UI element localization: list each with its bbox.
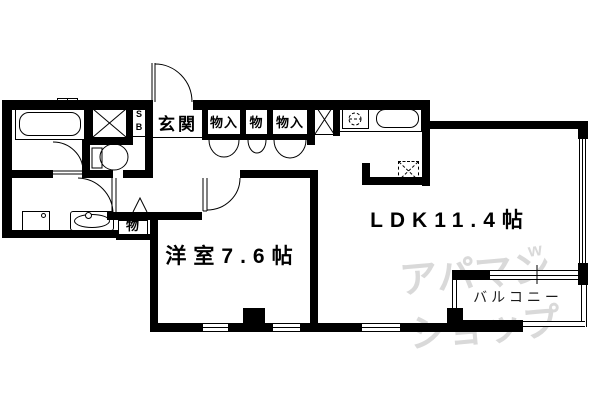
pipe-space-x-west: [93, 109, 126, 137]
floor-plan: アパマン w ショップ S B: [0, 0, 600, 400]
west-room-door: [203, 178, 240, 211]
entrance-door: [152, 63, 192, 102]
closet1-doors: [209, 140, 239, 157]
western-room-label: 洋室7.6帖: [155, 240, 310, 269]
closet-top-1-label: 物入: [208, 108, 240, 135]
shoe-box-label: S B: [132, 105, 146, 137]
balcony-label: バルコニー: [466, 288, 570, 306]
ldk-label: LDK11.4帖: [352, 204, 548, 233]
shoe-box-letter-b: B: [136, 121, 143, 134]
closet-top-2-label: 物: [246, 108, 267, 135]
washroom-door: [78, 178, 116, 214]
pipe-space-x-east: [315, 105, 334, 134]
toilet: [92, 144, 128, 170]
hall-closet-label: 物: [116, 214, 150, 235]
stove-burner: [349, 113, 361, 125]
plan-symbols: [0, 0, 600, 400]
closet2-doors: [248, 140, 266, 153]
bathroom-door: [53, 142, 84, 174]
entrance-label: 玄関: [153, 108, 203, 137]
shoe-box-letter-s: S: [136, 108, 142, 121]
hall-closet-door: [133, 198, 147, 212]
closet3-doors: [274, 140, 306, 158]
closet-top-3-label: 物入: [273, 108, 307, 135]
refrigerator-x: [399, 162, 418, 180]
